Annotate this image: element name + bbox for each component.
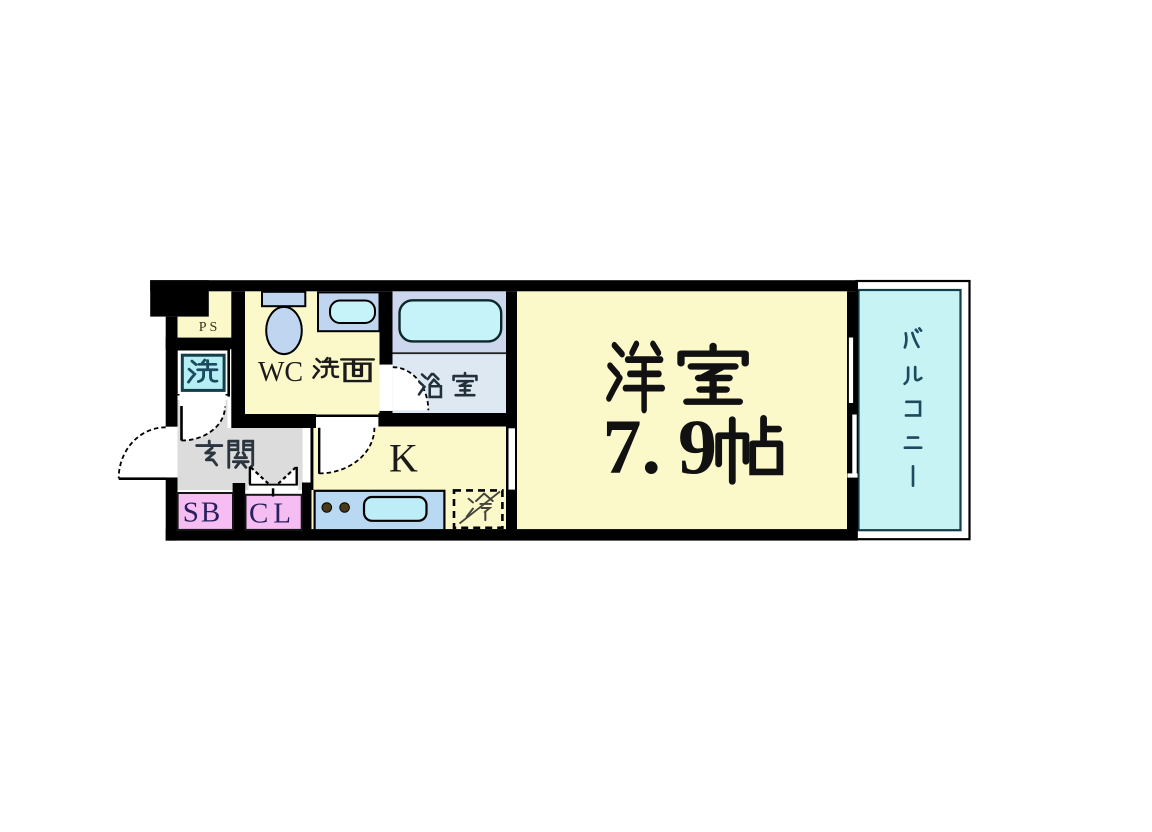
svg-text:7.: 7. — [603, 403, 662, 490]
svg-text:WC: WC — [258, 357, 303, 388]
svg-text:K: K — [389, 436, 418, 481]
svg-text:PS: PS — [199, 320, 221, 335]
svg-text:SB: SB — [183, 497, 222, 529]
svg-text:CL: CL — [249, 498, 296, 530]
svg-text:9: 9 — [678, 403, 717, 490]
